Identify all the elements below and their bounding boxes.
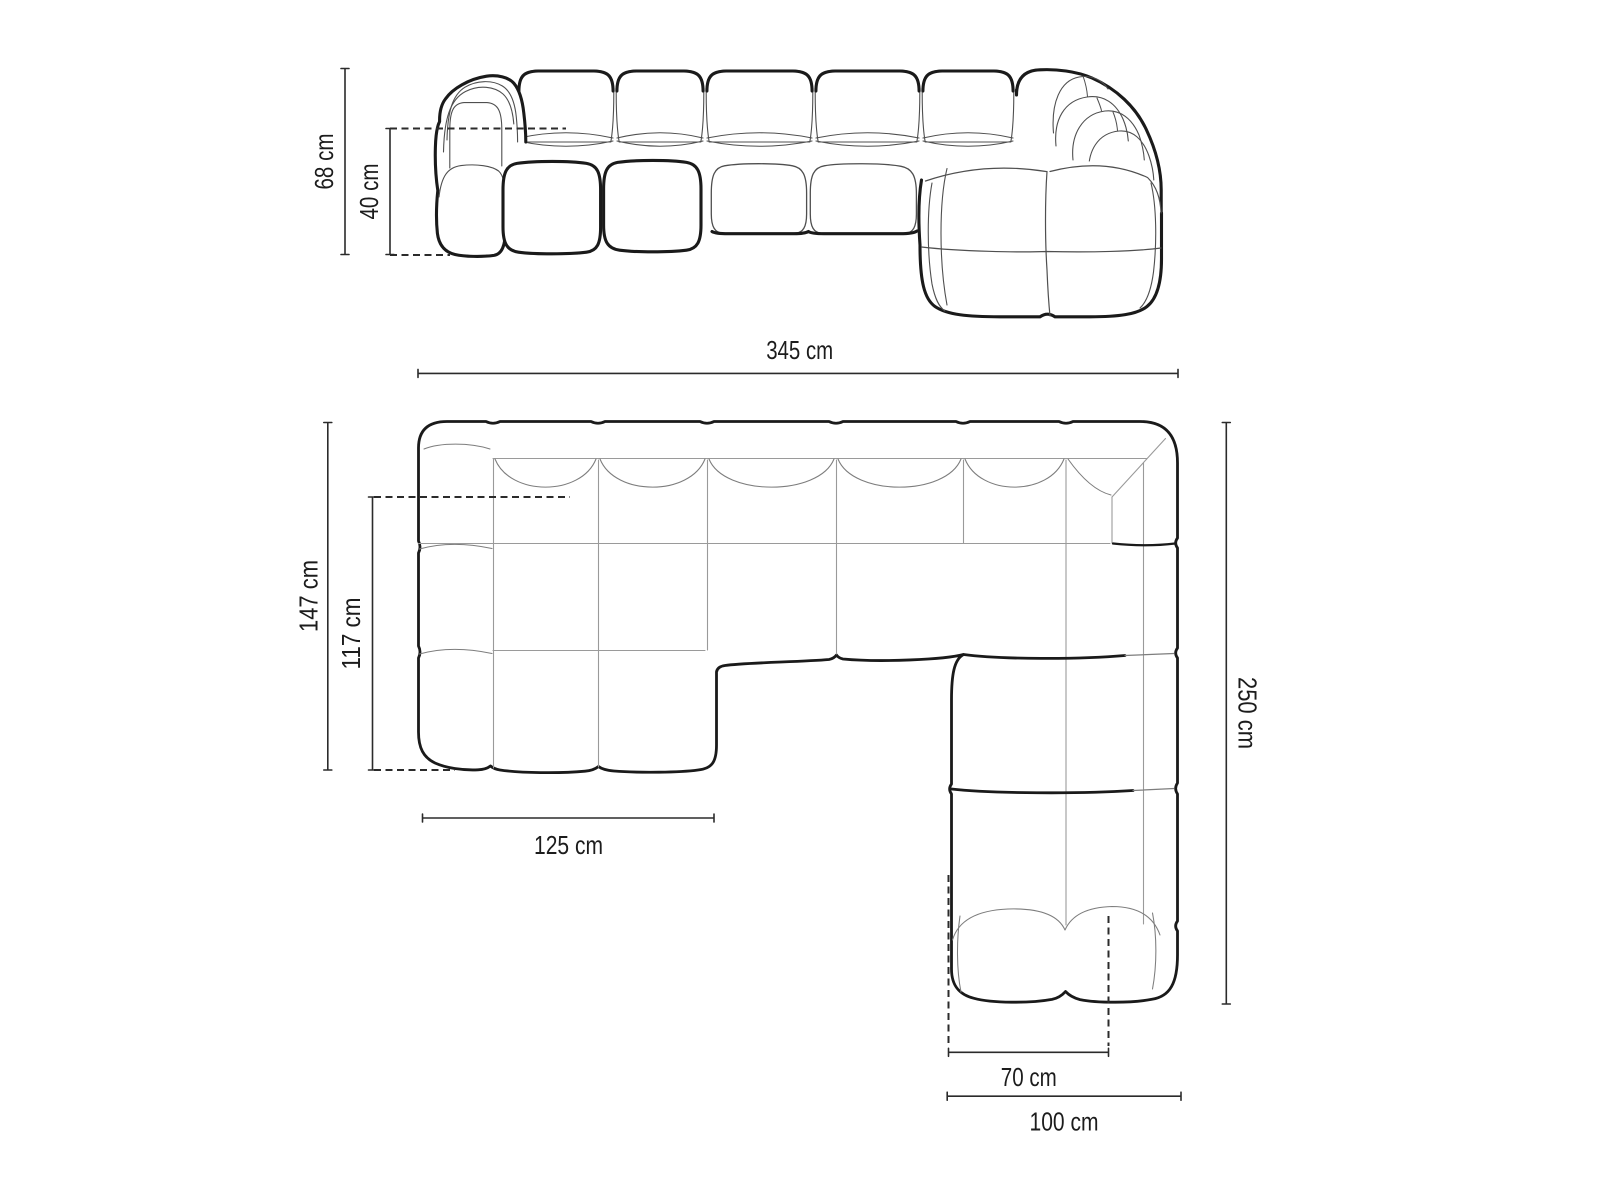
svg-text:100 cm: 100 cm <box>1030 1107 1099 1137</box>
svg-text:250 cm: 250 cm <box>1233 677 1263 749</box>
svg-text:40 cm: 40 cm <box>354 164 384 220</box>
svg-text:117 cm: 117 cm <box>336 598 366 670</box>
svg-text:345 cm: 345 cm <box>766 335 833 365</box>
svg-text:147 cm: 147 cm <box>293 560 323 632</box>
svg-text:68 cm: 68 cm <box>309 134 339 190</box>
svg-text:125 cm: 125 cm <box>534 830 603 860</box>
svg-text:70 cm: 70 cm <box>1001 1062 1057 1092</box>
